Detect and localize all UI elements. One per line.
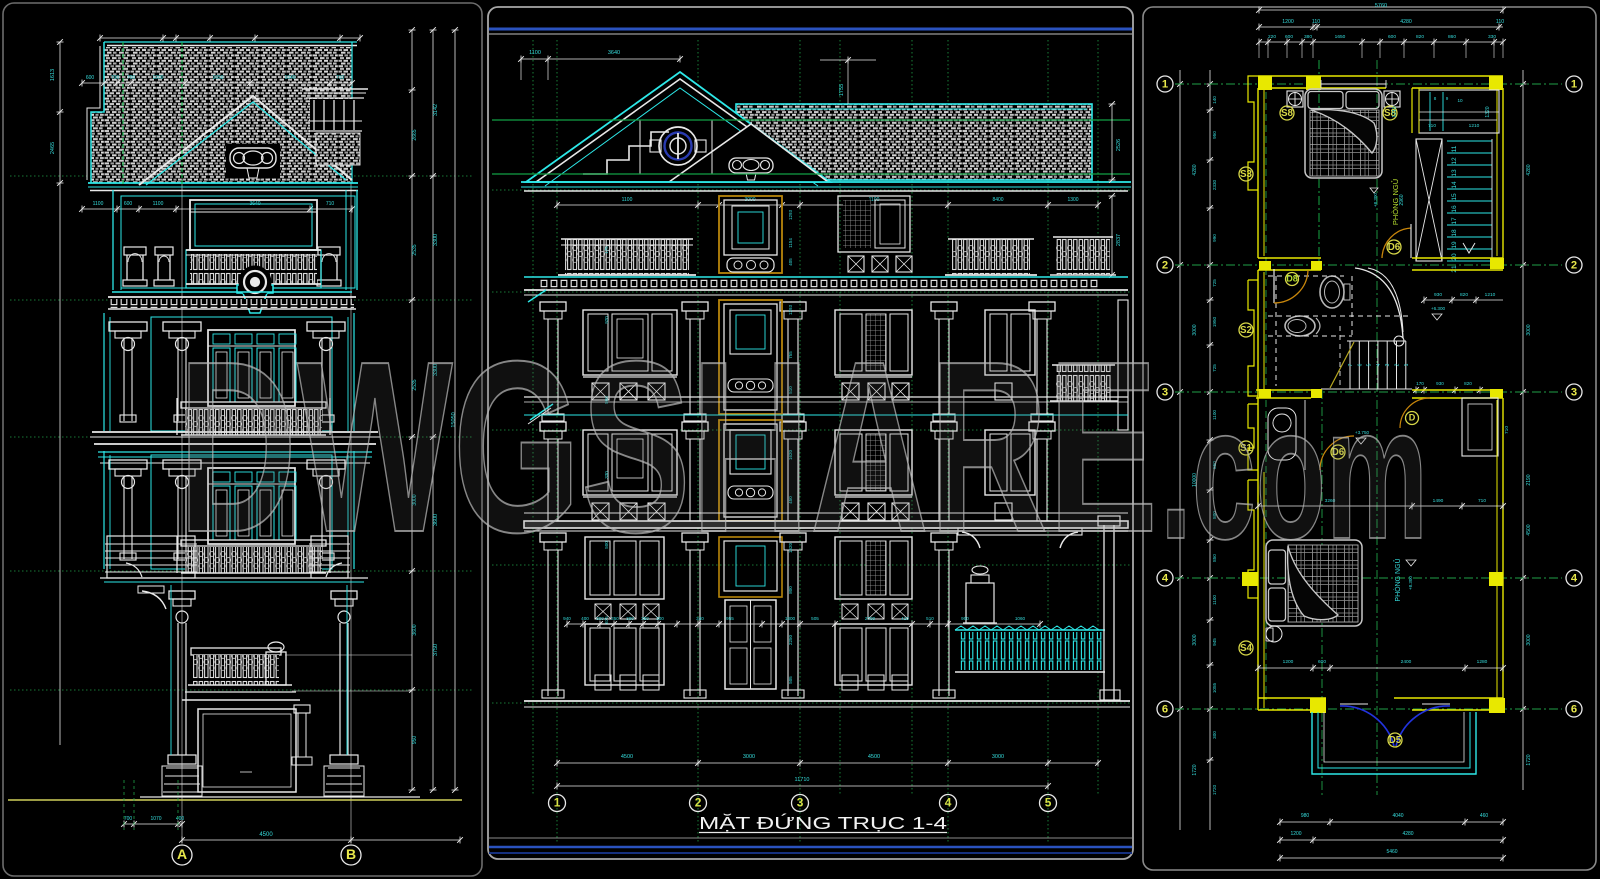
svg-text:600: 600 [1388, 34, 1396, 40]
svg-text:4500: 4500 [259, 832, 273, 838]
svg-text:4280: 4280 [1192, 164, 1198, 175]
svg-text:1100: 1100 [1212, 595, 1217, 605]
svg-text:2: 2 [1162, 259, 1168, 271]
svg-text:20: 20 [1451, 253, 1458, 261]
svg-text:6: 6 [1357, 363, 1363, 366]
svg-text:980: 980 [1301, 813, 1310, 819]
svg-text:600: 600 [1285, 34, 1293, 40]
svg-text:4: 4 [945, 796, 952, 810]
svg-text:700: 700 [111, 75, 120, 81]
svg-text:6: 6 [1162, 703, 1168, 715]
svg-text:3600: 3600 [412, 624, 418, 635]
svg-text:16: 16 [1451, 205, 1458, 213]
svg-text:4280: 4280 [1402, 831, 1413, 837]
svg-text:3750: 3750 [433, 644, 439, 656]
svg-text:1755: 1755 [839, 84, 845, 96]
svg-text:14: 14 [1451, 181, 1458, 189]
svg-text:505: 505 [788, 676, 793, 684]
svg-text:2: 2 [1571, 259, 1577, 271]
svg-text:2665: 2665 [412, 129, 418, 140]
svg-text:3000: 3000 [1526, 634, 1532, 645]
svg-text:140: 140 [1212, 96, 1217, 104]
svg-text:1100: 1100 [153, 201, 164, 207]
svg-text:300: 300 [626, 616, 634, 621]
svg-text:1613: 1613 [50, 69, 56, 81]
svg-text:600: 600 [86, 75, 95, 81]
svg-text:1040: 1040 [284, 75, 295, 81]
svg-text:2837: 2837 [1116, 234, 1122, 246]
svg-text:4: 4 [1571, 572, 1578, 584]
svg-text:710: 710 [336, 75, 345, 81]
svg-text:15: 15 [1451, 193, 1458, 201]
svg-text:9: 9 [1446, 96, 1449, 101]
svg-text:1210: 1210 [1485, 292, 1496, 298]
svg-text:5: 5 [1367, 363, 1373, 366]
svg-text:1: 1 [554, 796, 561, 810]
svg-text:1: 1 [1404, 363, 1410, 366]
svg-text:1210: 1210 [1392, 106, 1398, 117]
svg-text:1100: 1100 [622, 197, 633, 203]
svg-text:930: 930 [1436, 381, 1444, 386]
svg-text:5460: 5460 [1386, 849, 1397, 855]
svg-text:600: 600 [1318, 659, 1326, 665]
svg-text:4280: 4280 [1400, 19, 1412, 25]
svg-text:S3: S3 [1240, 169, 1253, 180]
svg-text:330: 330 [1488, 34, 1496, 40]
svg-text:1200: 1200 [152, 75, 163, 81]
svg-text:3: 3 [797, 796, 804, 810]
svg-text:1200: 1200 [1290, 831, 1301, 837]
svg-text:3000: 3000 [1526, 324, 1532, 335]
svg-text:.com: .com [1160, 367, 1428, 579]
svg-text:13: 13 [1451, 169, 1458, 177]
svg-text:300: 300 [1212, 731, 1217, 739]
svg-text:1650: 1650 [212, 75, 223, 81]
svg-text:4500: 4500 [621, 754, 633, 760]
svg-text:1154: 1154 [788, 238, 793, 248]
svg-text:2: 2 [695, 796, 702, 810]
svg-text:175: 175 [604, 246, 609, 254]
svg-text:1720: 1720 [1212, 784, 1217, 795]
svg-text:DWGSHARE: DWGSHARE [178, 310, 1158, 583]
svg-text:S8: S8 [1281, 108, 1294, 119]
svg-text:4280: 4280 [1526, 164, 1532, 175]
svg-text:675: 675 [604, 616, 609, 624]
svg-text:MẶT ĐỨNG TRỤC 1-4: MẶT ĐỨNG TRỤC 1-4 [699, 812, 947, 833]
svg-text:3000: 3000 [743, 754, 755, 760]
svg-text:950: 950 [412, 736, 418, 745]
svg-text:3142: 3142 [433, 104, 439, 116]
svg-text:1060: 1060 [1015, 616, 1026, 621]
svg-text:3: 3 [1571, 386, 1577, 398]
svg-text:S4: S4 [1240, 643, 1253, 654]
svg-text:3300: 3300 [433, 234, 439, 246]
svg-text:8400: 8400 [992, 197, 1003, 203]
svg-text:700: 700 [124, 816, 133, 822]
svg-text:1200: 1200 [1282, 19, 1294, 25]
svg-text:1100: 1100 [93, 201, 104, 207]
svg-text:930: 930 [1434, 292, 1442, 298]
svg-text:21: 21 [1451, 265, 1458, 273]
svg-text:D8: D8 [1286, 274, 1298, 284]
svg-text:4: 4 [1376, 363, 1382, 366]
svg-text:1: 1 [1571, 78, 1577, 90]
svg-text:990: 990 [1212, 234, 1217, 242]
svg-text:1055: 1055 [1212, 682, 1217, 693]
svg-text:18: 18 [1451, 229, 1458, 237]
svg-text:1100: 1100 [529, 50, 541, 56]
svg-text:12: 12 [1451, 157, 1458, 165]
svg-text:725: 725 [1212, 279, 1217, 287]
svg-text:4500: 4500 [1526, 524, 1532, 535]
svg-text:400: 400 [581, 616, 589, 621]
svg-text:D6: D6 [1388, 242, 1401, 253]
svg-text:B: B [346, 846, 356, 862]
svg-text:17: 17 [1451, 217, 1458, 225]
svg-text:1293: 1293 [788, 209, 793, 220]
svg-text:3640: 3640 [608, 50, 620, 56]
svg-text:5: 5 [1045, 796, 1052, 810]
svg-text:820: 820 [1460, 292, 1468, 298]
svg-text:1070: 1070 [150, 816, 161, 822]
svg-text:1800: 1800 [785, 616, 796, 621]
svg-text:300: 300 [656, 616, 664, 621]
svg-text:340: 340 [696, 616, 704, 621]
svg-text:505: 505 [811, 616, 819, 621]
svg-text:2190: 2190 [1526, 474, 1532, 485]
svg-text:10: 10 [1457, 98, 1463, 103]
svg-text:710: 710 [1428, 123, 1436, 129]
svg-text:3000: 3000 [1192, 324, 1198, 335]
svg-text:3000: 3000 [1192, 634, 1198, 645]
svg-text:1200: 1200 [1283, 659, 1294, 665]
svg-text:2700: 2700 [865, 616, 876, 621]
svg-text:6: 6 [1571, 703, 1577, 715]
svg-text:1720: 1720 [1192, 764, 1198, 775]
svg-text:400: 400 [176, 816, 185, 822]
svg-text:820: 820 [1464, 381, 1472, 386]
svg-text:600: 600 [124, 201, 133, 207]
svg-text:350: 350 [611, 616, 619, 621]
svg-text:1: 1 [1162, 78, 1168, 90]
svg-text:945: 945 [1212, 638, 1217, 646]
svg-text:710: 710 [326, 201, 335, 207]
svg-text:950: 950 [1212, 131, 1217, 139]
svg-text:+8.300: +8.300 [1373, 193, 1378, 207]
svg-text:1280: 1280 [1477, 659, 1488, 665]
svg-text:860: 860 [1448, 34, 1456, 40]
svg-text:7: 7 [1348, 363, 1354, 366]
svg-text:3: 3 [1385, 363, 1391, 366]
svg-text:19: 19 [1451, 241, 1458, 249]
svg-text:350: 350 [641, 616, 649, 621]
svg-text:1650: 1650 [1335, 34, 1346, 40]
svg-text:+6.300: +6.300 [1431, 306, 1446, 311]
svg-text:940: 940 [563, 616, 571, 621]
svg-text:820: 820 [1416, 34, 1424, 40]
svg-text:955: 955 [726, 616, 734, 621]
svg-text:2330: 2330 [1212, 179, 1217, 190]
svg-text:4500: 4500 [868, 754, 880, 760]
svg-text:110: 110 [1312, 19, 1320, 25]
svg-text:220: 220 [1268, 34, 1276, 40]
svg-text:S2: S2 [1240, 325, 1253, 336]
svg-text:1950: 1950 [1212, 316, 1217, 327]
svg-text:11: 11 [1451, 145, 1458, 152]
svg-text:2400: 2400 [1401, 659, 1412, 665]
svg-text:4040: 4040 [1392, 813, 1403, 819]
svg-text:380: 380 [1304, 34, 1312, 40]
svg-text:510: 510 [926, 616, 934, 621]
svg-text:D5: D5 [1389, 735, 1402, 746]
svg-text:A: A [177, 846, 187, 862]
svg-text:5760: 5760 [1375, 3, 1387, 9]
svg-text:1210: 1210 [1469, 123, 1480, 129]
svg-text:2960: 2960 [1399, 194, 1405, 205]
svg-text:11710: 11710 [795, 777, 810, 783]
svg-text:2465: 2465 [50, 142, 56, 154]
svg-text:405: 405 [788, 258, 793, 266]
svg-text:2526: 2526 [1116, 139, 1122, 151]
svg-text:1490: 1490 [1433, 498, 1444, 504]
svg-text:110: 110 [1496, 19, 1504, 25]
svg-text:710: 710 [1478, 498, 1486, 504]
svg-text:1300: 1300 [1067, 197, 1078, 203]
svg-text:1320: 1320 [1485, 106, 1491, 117]
svg-text:900: 900 [961, 616, 969, 621]
svg-text:460: 460 [1480, 813, 1489, 819]
svg-text:710: 710 [1504, 426, 1510, 434]
svg-text:2: 2 [1395, 363, 1401, 366]
svg-text:8: 8 [1434, 96, 1437, 101]
svg-text:800: 800 [788, 586, 793, 594]
svg-text:3000: 3000 [992, 754, 1004, 760]
svg-text:1720: 1720 [1526, 754, 1532, 765]
svg-text:2250: 2250 [788, 634, 793, 645]
svg-text:410: 410 [901, 616, 909, 621]
svg-text:2535: 2535 [412, 244, 418, 255]
